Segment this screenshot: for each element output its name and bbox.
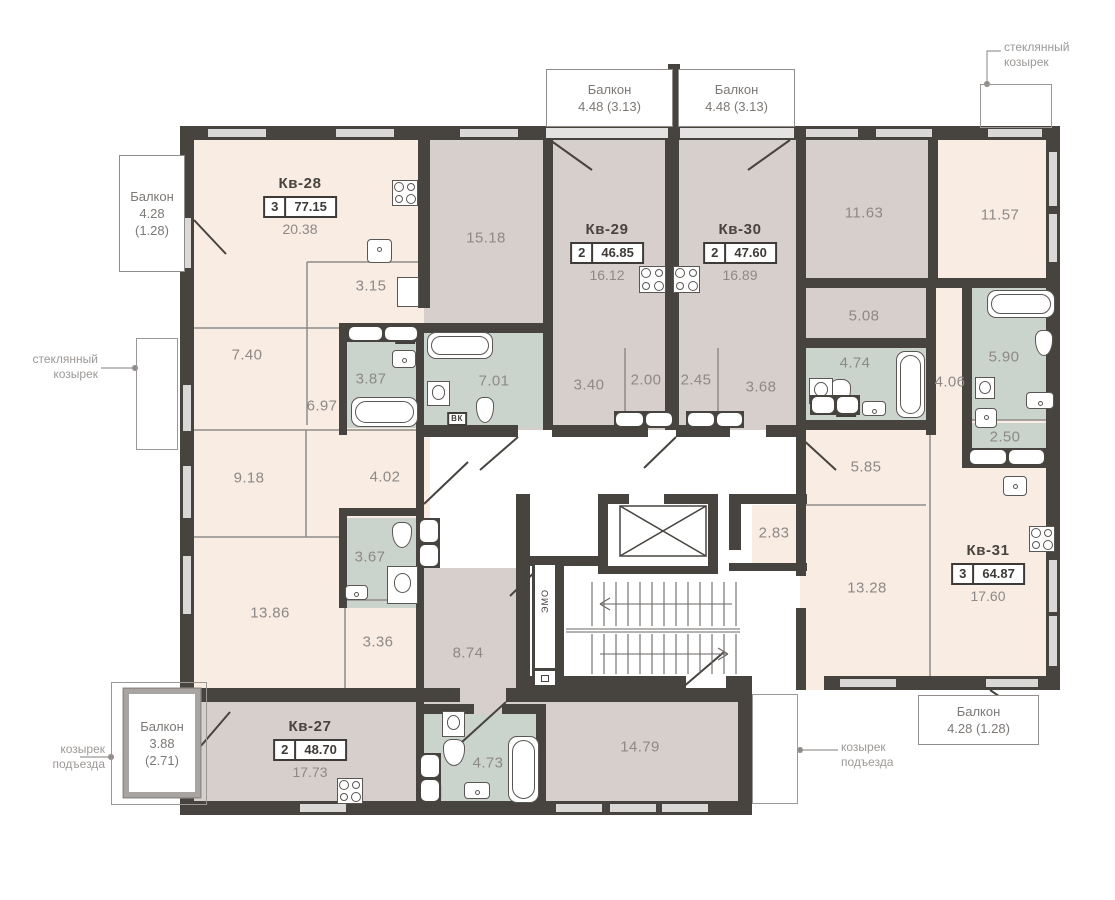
room-area-label: 4.02 [370,469,401,486]
balcony-label: Балкон 4.28 (1.28) [130,188,174,239]
apartment-label-kv31[interactable]: Кв-31364.8717.60 [951,542,1025,604]
bathroom-sink-icon [862,401,886,416]
apartment-rooms-count: 3 [953,565,974,583]
vk-riser-strip [614,411,674,428]
bathroom-sink-icon [345,585,368,600]
apartment-total-area: 48.70 [296,741,345,759]
apartment-badge: 248.70 [273,739,347,761]
room-area-label: 7.40 [232,347,263,364]
washing-machine-icon [975,377,995,399]
bathtub-icon [508,736,539,803]
room-area-label: 4.74 [840,355,871,372]
apartment-badge: 377.15 [263,196,337,218]
balcony: Балкон 4.48 (3.13) [678,69,795,127]
vk-riser-strip [418,518,440,568]
kitchen-unit-icon [397,277,419,307]
vk-riser-strip [347,325,419,342]
stove-icon [392,180,418,206]
kitchen-sink-icon [367,239,392,263]
vk-riser-strip [968,448,1046,466]
apartment-badge: 246.85 [570,242,644,264]
apartment-badge: 364.87 [951,563,1025,585]
bathroom-sink-icon [464,782,490,799]
washing-machine-icon [442,711,465,737]
bathtub-icon [427,332,493,359]
electrical-shaft-label: ЭМО [523,589,567,613]
toilet-icon [1035,330,1053,356]
floor-plan: 15.183.157.403.876.977.013.402.002.453.6… [0,0,1115,900]
apartment-rooms-count: 3 [265,198,286,216]
balcony: Балкон 4.28 (1.28) [918,695,1039,745]
apartment-total-area: 64.87 [974,565,1023,583]
balcony-label: Балкон 4.28 (1.28) [947,703,1010,737]
apartment-total-area: 47.60 [726,244,775,262]
apartment-rooms-count: 2 [275,741,296,759]
room-area-label: 3.15 [356,278,387,295]
vk-riser-strip [810,395,860,415]
apartment-total-area: 46.85 [593,244,642,262]
room-area-label: 8.74 [453,645,484,662]
vk-riser-strip [686,411,744,428]
bathroom-sink-icon [975,408,997,428]
room-area-label: 3.68 [746,379,777,396]
room-area-label: 3.67 [355,549,386,566]
washing-machine-icon [427,381,450,406]
bathroom-sink-icon [1026,392,1054,409]
room-area-label: 2.50 [990,429,1021,446]
room-area-label: 3.87 [356,371,387,388]
apartment-rooms-count: 2 [572,244,593,262]
room-area-label: 11.57 [981,207,1019,224]
room-area-label: 7.01 [479,373,510,390]
room-area-label: 15.18 [466,230,506,247]
room-area-label: 2.00 [631,372,662,389]
canopy-outline [136,338,178,450]
vk-riser-strip [419,753,441,803]
vk-badge: ВК [447,412,467,426]
canopy-outline [752,694,798,804]
apartment-kitchen-area: 16.89 [703,267,777,283]
apartment-rooms-count: 2 [705,244,726,262]
apartment-name: Кв-28 [263,175,337,192]
stove-icon [337,778,363,804]
toilet-icon [443,739,465,766]
electrical-shaft-cell [535,668,555,685]
room-area-label: 5.90 [989,349,1020,366]
bathtub-icon [351,397,418,427]
bathroom-sink-icon [392,350,416,368]
room-area-label: 11.63 [845,205,883,222]
room-area-label: 13.28 [847,580,887,597]
balcony-label: Балкон 4.48 (3.13) [578,81,641,115]
canopy-annotation: козырек подъезда [53,742,105,772]
apartment-badge: 247.60 [703,242,777,264]
balcony: Балкон 4.28 (1.28) [119,155,185,272]
apartment-label-kv29[interactable]: Кв-29246.8516.12 [570,221,644,283]
apartment-label-kv28[interactable]: Кв-28377.1520.38 [263,175,337,237]
room-area-label: 9.18 [234,470,265,487]
room-area-label: 14.79 [620,739,660,756]
room-area-label: 2.45 [681,372,712,389]
room-area-label: 13.86 [250,605,290,622]
room-area-label: 3.40 [574,377,605,394]
canopy-annotation: стеклянный козырек [32,352,98,382]
balcony-label: Балкон 4.48 (3.13) [705,81,768,115]
stove-icon [1029,526,1055,552]
canopy-annotation: стеклянный козырек [1004,40,1070,70]
stove-icon [673,266,700,293]
balcony: Балкон 4.48 (3.13) [546,69,673,127]
room-area-label: 5.08 [849,308,880,325]
room-area-label: 2.83 [759,525,790,542]
canopy-outline [111,682,207,805]
apartment-kitchen-area: 17.60 [951,588,1025,604]
shower-icon [387,566,418,604]
apartment-name: Кв-29 [570,221,644,238]
room-area-label: 4.73 [473,755,504,772]
toilet-icon [392,522,412,548]
toilet-icon [476,397,494,423]
apartment-kitchen-area: 16.12 [570,267,644,283]
apartment-total-area: 77.15 [286,198,335,216]
canopy-outline [980,84,1052,128]
apartment-name: Кв-27 [273,718,347,735]
stove-icon [639,266,666,293]
apartment-label-kv27[interactable]: Кв-27248.7017.73 [273,718,347,780]
canopy-annotation: козырек подъезда [841,740,893,770]
bathtub-icon [896,351,925,418]
bathtub-icon [987,290,1055,318]
room-area-label: 3.36 [363,634,394,651]
apartment-name: Кв-31 [951,542,1025,559]
apartment-kitchen-area: 17.73 [273,764,347,780]
room-area-label: 5.85 [851,459,882,476]
kitchen-sink-icon [1003,476,1027,496]
room-area-label: 6.97 [307,398,338,415]
apartment-name: Кв-30 [703,221,777,238]
room-area-label: 4.06 [935,374,966,391]
apartment-kitchen-area: 20.38 [263,221,337,237]
apartment-label-kv30[interactable]: Кв-30247.6016.89 [703,221,777,283]
electrical-shaft: ЭМО [532,562,558,688]
